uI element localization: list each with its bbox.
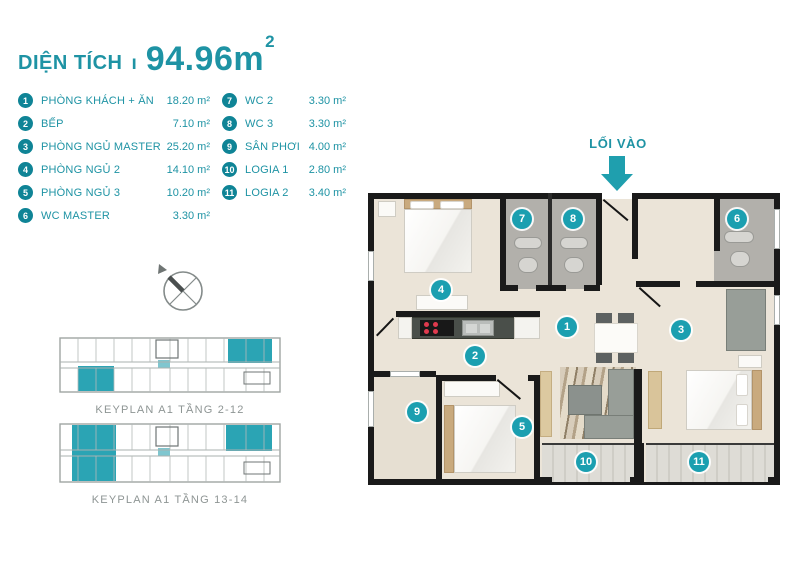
wall [636,281,680,287]
legend-item: 3 PHÒNG NGỦ MASTER 25.20 m² [18,139,210,154]
legend-num-badge: 9 [222,139,237,154]
sink [560,237,588,249]
dining-chair [596,353,612,363]
pillow [736,374,748,396]
legend-item: 10 LOGIA 1 2.80 m² [222,162,346,177]
wall [500,193,506,291]
coffee-table [568,385,602,415]
legend-num-badge: 6 [18,208,33,223]
toilet [564,257,584,273]
legend-label: PHÒNG NGỦ MASTER [41,141,167,153]
legend-item: 8 WC 3 3.30 m² [222,116,346,131]
kitchen-cabinet [398,317,412,339]
dining-table [594,323,638,353]
legend-num-badge: 7 [222,93,237,108]
bed-headboard [752,370,762,430]
floorplan-page: DIỆN TÍCH ı 94.96m2 1 PHÒNG KHÁCH + ĂN 1… [0,0,800,566]
room-marker-wc2: 7 [512,209,532,229]
sliding-door-track [542,443,634,445]
sliding-door-track [646,443,774,445]
wall [632,199,638,259]
console-cabinet [648,371,662,429]
legend-area: 3.30 m² [309,95,346,107]
entry-arrow-icon [601,174,633,191]
legend-item: 9 SÂN PHƠI 4.00 m² [222,139,346,154]
legend-label: WC MASTER [41,210,173,222]
pillow [736,404,748,426]
wall [584,285,600,291]
wall [368,193,374,485]
nightstand [738,355,762,368]
wall [696,281,774,287]
kitchen-cabinet [514,317,540,339]
wall [420,371,436,377]
legend-num-badge: 1 [18,93,33,108]
window [368,391,374,427]
wall [632,193,780,199]
wall [714,193,720,251]
legend-num-badge: 10 [222,162,237,177]
legend-area: 3.30 m² [309,118,346,130]
keyplan-floors-2-12: KEYPLAN A1 TẦNG 2-12 [58,332,282,416]
wall [634,369,642,445]
keyplan-floors-13-14: KEYPLAN A1 TẦNG 13-14 [58,418,282,506]
bed-bedroom3 [454,405,516,473]
toilet [518,257,538,273]
legend-num-badge: 2 [18,116,33,131]
entry-arrow-icon [609,156,625,174]
legend-item: 7 WC 2 3.30 m² [222,93,346,108]
legend-label: PHÒNG NGỦ 2 [41,164,167,176]
apartment-floor-plan: 1 2 3 4 5 6 7 8 9 10 11 [368,193,780,493]
legend-area: 2.80 m² [309,164,346,176]
wall [396,311,540,317]
floor-drying-yard [374,375,436,485]
room-marker-living: 1 [557,317,577,337]
sofa [608,369,634,419]
keyplan-diagram [58,418,282,488]
legend-area: 25.20 m² [167,141,210,153]
legend-area: 7.10 m² [173,118,210,130]
sink [514,237,542,249]
wall [368,193,602,199]
legend-label: SÂN PHƠI [245,141,309,153]
bed-bedroom2 [404,209,472,273]
legend-num-badge: 5 [18,185,33,200]
room-marker-drying-yard: 9 [407,402,427,422]
legend-area: 3.40 m² [309,187,346,199]
legend-label: BẾP [41,118,173,130]
room-marker-wc3: 8 [563,209,583,229]
room-marker-logia2: 11 [689,452,709,472]
keyplan-caption: KEYPLAN A1 TẦNG 2-12 [58,404,282,416]
cooktop [420,320,454,336]
legend-num-badge: 3 [18,139,33,154]
window [774,295,780,325]
legend-item: 6 WC MASTER 3.30 m² [18,208,210,223]
pillow [410,201,434,209]
room-marker-logia1: 10 [576,452,596,472]
wall [536,285,566,291]
area-title-label: DIỆN TÍCH [18,53,123,73]
sofa-chaise [584,415,634,439]
window [368,251,374,281]
room-marker-bedroom2: 4 [431,280,451,300]
entry-label: LỐI VÀO [583,136,653,151]
legend-label: WC 3 [245,118,309,130]
master-sofa [726,289,766,351]
side-table [378,201,396,217]
dining-chair [596,313,612,323]
legend-item: 4 PHÒNG NGỦ 2 14.10 m² [18,162,210,177]
logia-edge [544,482,780,485]
legend-item: 2 BẾP 7.10 m² [18,116,210,131]
legend-area: 4.00 m² [309,141,346,153]
legend-label: PHÒNG KHÁCH + ĂN [41,95,167,107]
wall [436,375,496,381]
wall-post [768,477,780,485]
total-area-value: 94.96m2 [146,46,274,73]
toilet [730,251,750,267]
room-marker-wc-master: 6 [727,209,747,229]
legend-item: 1 PHÒNG KHÁCH + ĂN 18.20 m² [18,93,210,108]
legend-num-badge: 4 [18,162,33,177]
compass-icon [146,256,208,323]
legend-item: 11 LOGIA 2 3.40 m² [222,185,346,200]
wall [548,193,552,285]
wardrobe [444,381,500,397]
legend-num-badge: 11 [222,185,237,200]
dining-chair [618,313,634,323]
keyplan-caption: KEYPLAN A1 TẦNG 13-14 [58,494,282,506]
legend-area: 10.20 m² [167,187,210,199]
wall-post [540,477,552,485]
legend-area: 14.10 m² [167,164,210,176]
legend-label: PHÒNG NGỦ 3 [41,187,167,199]
legend-label: LOGIA 2 [245,187,309,199]
room-marker-bedroom3: 5 [512,417,532,437]
bed-headboard [444,405,454,473]
title-separator: ı [132,54,137,73]
keyplan-diagram [58,332,282,398]
legend-area: 18.20 m² [167,95,210,107]
wall [500,285,518,291]
legend-num-badge: 8 [222,116,237,131]
page-title: DIỆN TÍCH ı 94.96m2 [18,46,274,73]
floor-logia2 [646,445,774,485]
room-marker-kitchen: 2 [465,346,485,366]
window [774,209,780,249]
legend-label: WC 2 [245,95,309,107]
wall [534,375,540,479]
wall [374,371,390,377]
dining-chair [618,353,634,363]
wall [436,375,442,485]
legend-label: LOGIA 1 [245,164,309,176]
wall [596,193,602,285]
wall [368,479,544,485]
window [390,371,420,377]
legend-area: 3.30 m² [173,210,210,222]
room-marker-master: 3 [671,320,691,340]
sink [724,231,754,243]
pillow [440,201,464,209]
legend-item: 5 PHÒNG NGỦ 3 10.20 m² [18,185,210,200]
wall [634,443,644,485]
kitchen-sink [462,320,494,336]
tv-cabinet [540,371,552,437]
